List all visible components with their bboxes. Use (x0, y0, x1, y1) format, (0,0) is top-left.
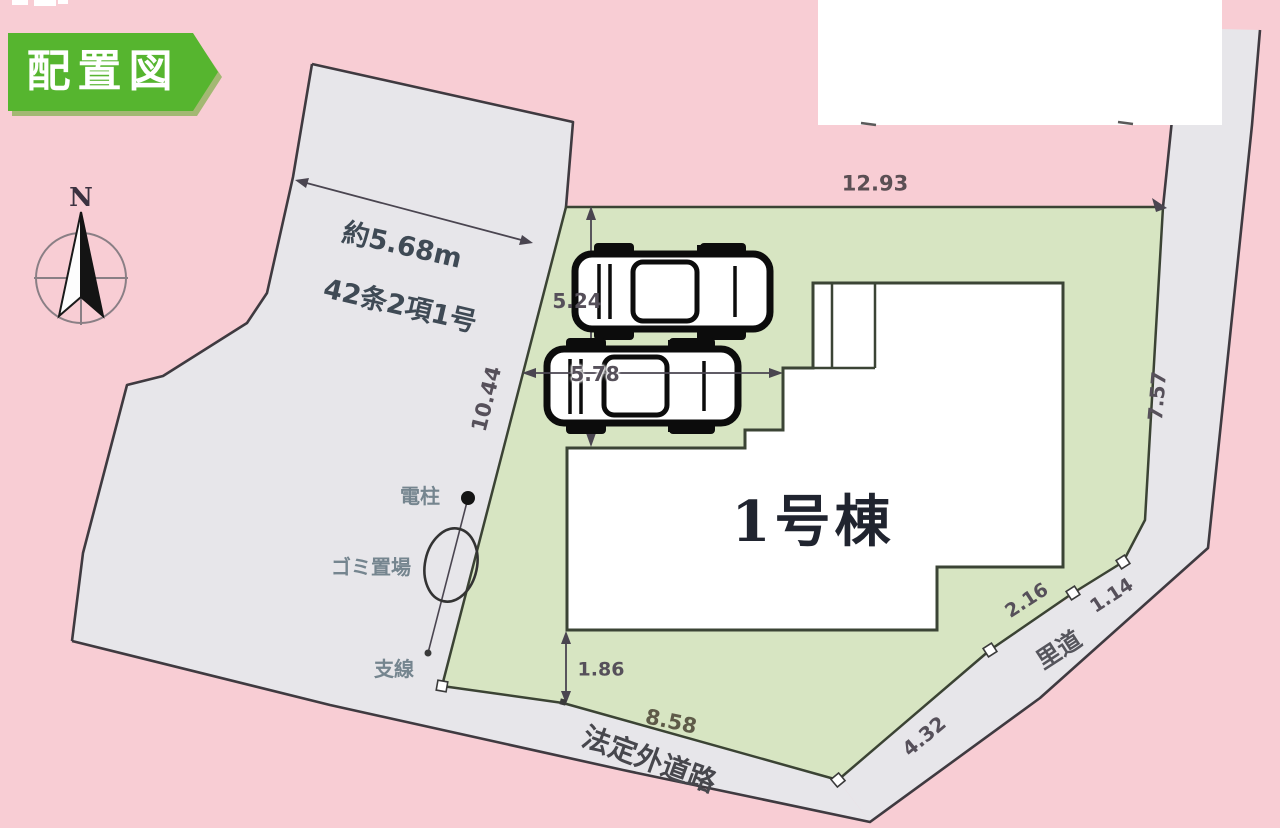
car-bottom (547, 338, 738, 434)
ribbon-shape (8, 33, 218, 111)
title-ribbon (8, 33, 222, 116)
compass-needle-east-half (81, 212, 103, 316)
compass-needle-west-half (59, 212, 81, 316)
site-plan-page: 配置図 N 約5.68m 42条2項1号 10.44 12.93 5.24 5.… (0, 0, 1280, 828)
top-left-clipped-marks (12, 0, 68, 6)
site-plan-svg (0, 0, 1280, 828)
utility-pole-dot (461, 491, 475, 505)
redaction-box (818, 0, 1222, 125)
car-top (575, 243, 770, 340)
guy-wire-dot (425, 650, 432, 657)
compass-rose (34, 212, 128, 325)
